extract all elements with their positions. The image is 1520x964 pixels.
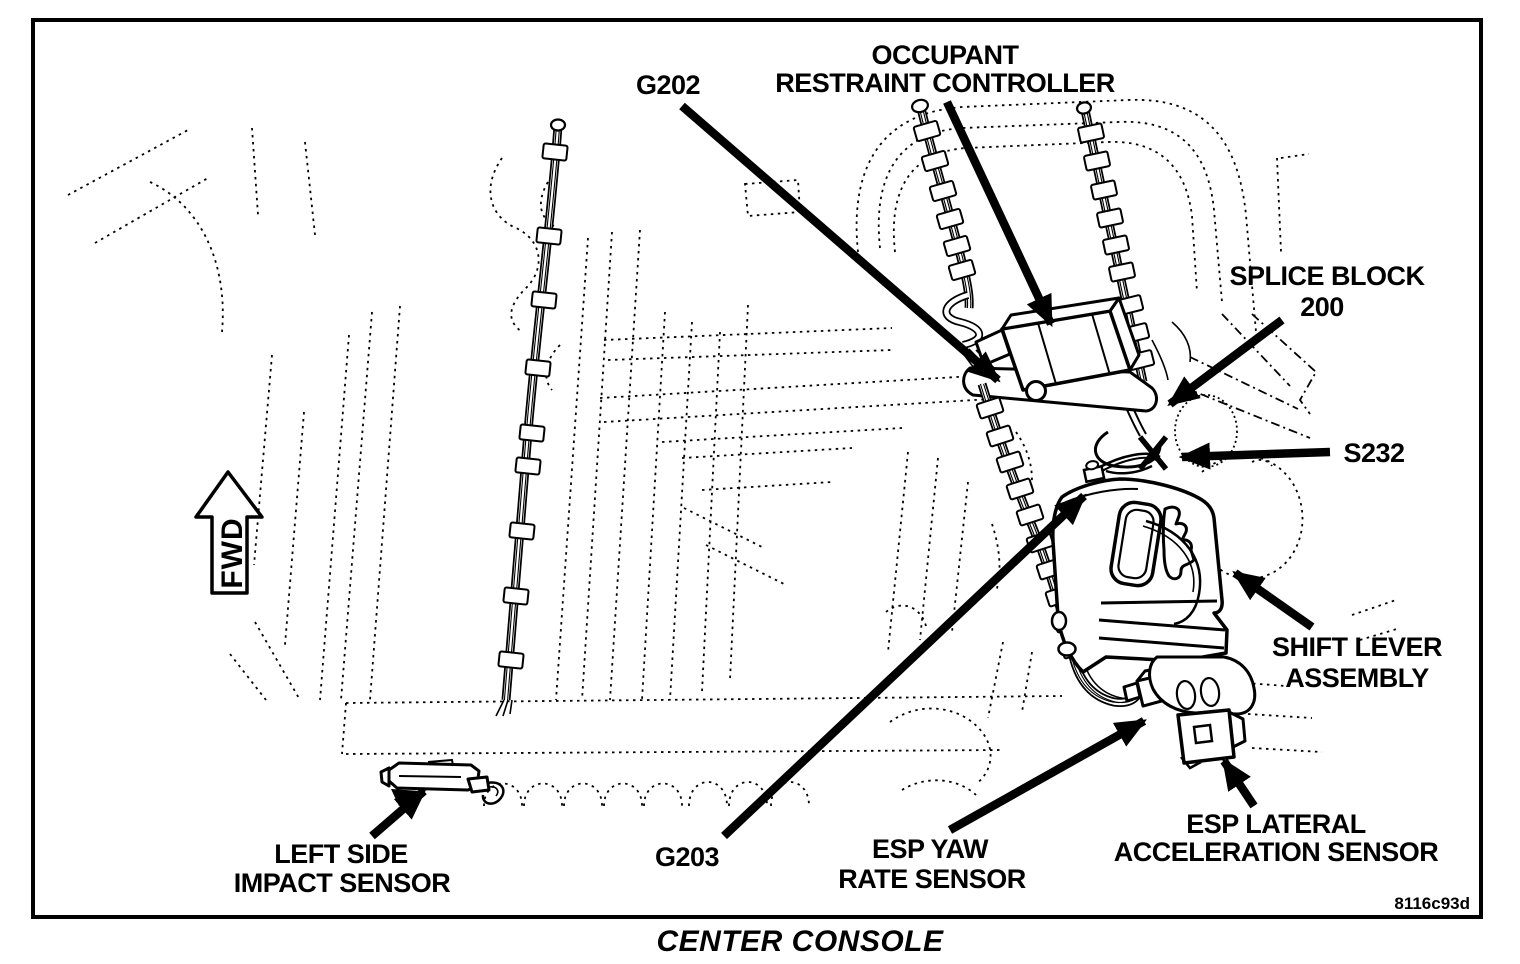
esp-yaw-label-line1: ESP YAW <box>872 834 989 864</box>
figure-border <box>33 20 1481 917</box>
g203-label: G203 <box>655 842 720 872</box>
figure-page: FWD G202 OCCUPANT RESTRAINT CONTROLLER S… <box>0 0 1520 964</box>
esp-lateral-label-line2: ACCELERATION SENSOR <box>1114 837 1439 867</box>
shift-label-line1: SHIFT LEVER <box>1272 632 1442 662</box>
fwd-arrow-label: FWD <box>216 517 249 588</box>
esp-lateral-label-line1: ESP LATERAL <box>1186 809 1366 839</box>
orc-label-line1: OCCUPANT <box>872 40 1020 70</box>
orc-mounting-bolt-hole <box>1027 382 1046 401</box>
s232-leader-arrow <box>1182 452 1330 457</box>
esp-yaw-label-line2: RATE SENSOR <box>838 864 1026 894</box>
center-console-diagram: FWD G202 OCCUPANT RESTRAINT CONTROLLER S… <box>0 0 1520 964</box>
figure-caption: CENTER CONSOLE <box>656 925 944 958</box>
impact-label-line1: LEFT SIDE <box>274 839 408 869</box>
impact-label-line2: IMPACT SENSOR <box>234 868 451 898</box>
g202-label: G202 <box>636 70 700 100</box>
shift-label-line2: ASSEMBLY <box>1285 663 1429 693</box>
orc-label-line2: RESTRAINT CONTROLLER <box>775 68 1114 98</box>
splice-label-line1: SPLICE BLOCK <box>1229 261 1425 291</box>
s232-label: S232 <box>1343 438 1404 468</box>
splice-label-line2: 200 <box>1300 292 1344 322</box>
figure-code: 8116c93d <box>1394 894 1470 913</box>
